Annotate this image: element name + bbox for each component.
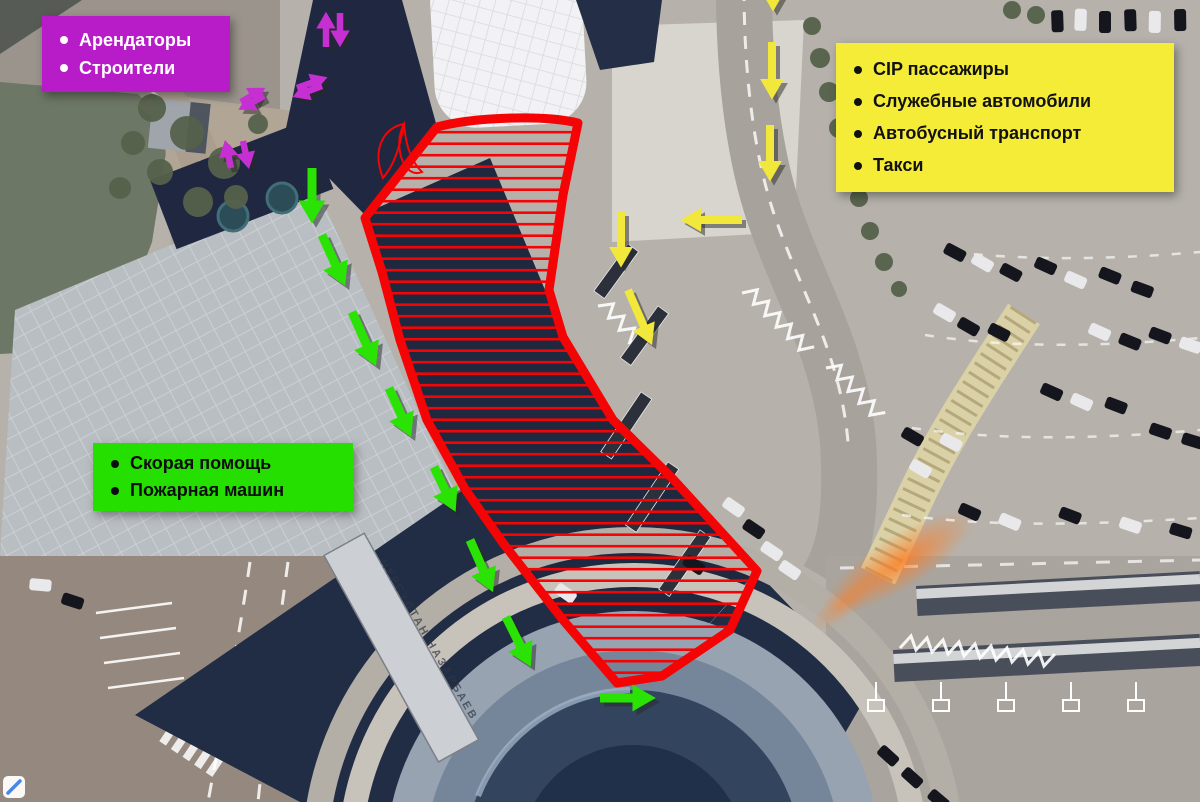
legend-item-label: Скорая помощь <box>130 453 271 474</box>
tree <box>810 48 830 68</box>
legend-item: Строители <box>60 58 212 79</box>
car <box>1124 9 1137 31</box>
car <box>1051 10 1064 32</box>
tree <box>224 185 248 209</box>
bullet-dot-icon <box>854 66 862 74</box>
purple-arrow-up <box>228 154 231 168</box>
purple-arrow-down <box>243 141 246 155</box>
legend-item: Автобусный транспорт <box>854 123 1156 144</box>
tree <box>803 17 821 35</box>
tree <box>861 222 879 240</box>
legend-item-label: CIP пассажиры <box>873 59 1009 80</box>
car <box>1174 9 1186 31</box>
legend-item: Такси <box>854 155 1156 176</box>
legend-item: Скорая помощь <box>111 453 335 474</box>
legend-emergency: Скорая помощь Пожарная машин <box>93 443 353 511</box>
legend-item-label: Арендаторы <box>79 30 191 51</box>
legend-item-label: Строители <box>79 58 175 79</box>
map-watermark-icon <box>3 776 25 798</box>
legend-item: Служебные автомобили <box>854 91 1156 112</box>
legend-item: Пожарная машин <box>111 480 335 501</box>
tree <box>875 253 893 271</box>
legend-item-label: Пожарная машин <box>130 480 284 501</box>
white-canopy <box>428 0 589 130</box>
car <box>1099 11 1111 33</box>
bullet-dot-icon <box>111 460 119 468</box>
legend-item: Арендаторы <box>60 30 212 51</box>
tree <box>138 94 166 122</box>
bullet-dot-icon <box>854 130 862 138</box>
tree <box>891 281 907 297</box>
tree <box>1027 6 1045 24</box>
tree <box>121 131 145 155</box>
legend-cip: CIP пассажиры Служебные автомобили Автоб… <box>836 43 1174 192</box>
legend-tenants: Арендаторы Строители <box>42 16 230 92</box>
car <box>1149 11 1161 33</box>
bullet-dot-icon <box>60 36 68 44</box>
legend-item-label: Такси <box>873 155 923 176</box>
legend-item-label: Служебные автомобили <box>873 91 1091 112</box>
car <box>29 578 52 592</box>
tree <box>170 116 204 150</box>
tree <box>147 159 173 185</box>
tree <box>183 187 213 217</box>
bullet-dot-icon <box>111 487 119 495</box>
car <box>1074 9 1087 31</box>
legend-item: CIP пассажиры <box>854 59 1156 80</box>
bullet-dot-icon <box>854 98 862 106</box>
tree <box>248 114 268 134</box>
tree <box>1003 1 1021 19</box>
bullet-dot-icon <box>60 64 68 72</box>
airport-map-screenshot: НҰРСҰЛТАН НАЗАРБАЕВ <box>0 0 1200 802</box>
bullet-dot-icon <box>854 162 862 170</box>
tree <box>109 177 131 199</box>
legend-item-label: Автобусный транспорт <box>873 123 1081 144</box>
